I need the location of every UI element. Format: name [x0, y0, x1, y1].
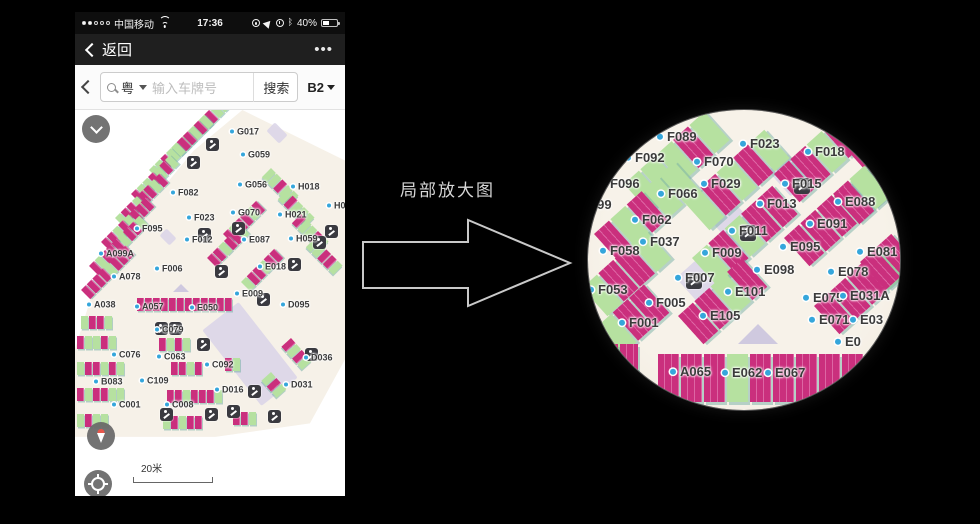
spot-id: F095 — [142, 224, 163, 234]
spot-dot-icon — [640, 238, 646, 244]
parking-stall — [187, 362, 194, 375]
parking-stall — [217, 298, 224, 311]
parking-spot-label: F023 — [740, 136, 780, 151]
spot-id: F001 — [629, 315, 659, 330]
spot-dot-icon — [112, 353, 116, 357]
spot-dot-icon — [165, 403, 169, 407]
parking-spot-label: C008 — [165, 400, 194, 410]
spot-id: F037 — [650, 234, 680, 249]
spot-dot-icon — [840, 292, 846, 298]
parking-spot-label: G059 — [241, 150, 270, 160]
spot-id: D031 — [291, 380, 313, 390]
spot-dot-icon — [725, 288, 731, 294]
parking-stall — [241, 412, 248, 425]
spot-id: E0 — [845, 334, 861, 349]
parking-row — [171, 362, 203, 375]
spot-id: F023 — [750, 136, 780, 151]
facility-icon — [232, 222, 245, 235]
alarm-icon — [276, 19, 284, 27]
spot-id: F012 — [192, 235, 213, 245]
parking-spot-label: E071 — [809, 312, 849, 327]
parking-stall — [101, 362, 108, 375]
plate-region-selector[interactable]: 粤 — [121, 78, 134, 97]
spot-id: C109 — [147, 376, 169, 386]
page: 中国移动 17:36 ᛒ 40% 返回 ••• 粤 输入车牌号 — [0, 0, 980, 524]
parking-stall — [195, 416, 202, 429]
parking-spot-label: A078 — [112, 272, 141, 282]
spot-id: E088 — [845, 194, 875, 209]
spot-dot-icon — [135, 227, 139, 231]
spot-id: F070 — [704, 154, 734, 169]
parking-stall — [171, 362, 178, 375]
spot-dot-icon — [646, 299, 652, 305]
spot-dot-icon — [757, 200, 763, 206]
map-scale: 20米 — [133, 460, 213, 483]
annotation-label: 局部放大图 — [400, 176, 530, 201]
spot-dot-icon — [235, 292, 239, 296]
spot-id: E087 — [249, 235, 270, 245]
parking-spot-label: F023 — [187, 213, 215, 223]
parking-spot-label: F007 — [675, 270, 715, 285]
spot-id: F015 — [792, 176, 822, 191]
search-icon — [107, 83, 116, 92]
spot-id: C008 — [172, 400, 194, 410]
parking-stall — [81, 316, 88, 329]
parking-spot-label: A057 — [135, 302, 164, 312]
parking-spot-label: F092 — [625, 150, 665, 165]
spot-dot-icon — [754, 266, 760, 272]
parking-spot-label: E075 — [803, 290, 843, 305]
spot-dot-icon — [140, 379, 144, 383]
facility-icon — [325, 225, 338, 238]
spot-id: D095 — [288, 300, 310, 310]
floor-selector[interactable]: B2 — [305, 76, 337, 99]
spot-dot-icon — [278, 213, 282, 217]
parking-stall — [195, 362, 202, 375]
phone-screenshot: 中国移动 17:36 ᛒ 40% 返回 ••• 粤 输入车牌号 — [75, 12, 345, 496]
parking-spot-label: F095 — [135, 224, 163, 234]
spot-dot-icon — [658, 190, 664, 196]
parking-spot-label: E081 — [857, 244, 897, 259]
parking-stall — [177, 298, 184, 311]
parking-spot-label: F029 — [701, 176, 741, 191]
spot-dot-icon — [185, 238, 189, 242]
locate-me-button[interactable] — [84, 470, 112, 496]
facility-icon — [227, 405, 240, 418]
spot-id: E031A — [850, 288, 890, 303]
parking-stall — [233, 358, 240, 371]
parking-stall — [819, 354, 840, 402]
spot-id: E078 — [838, 264, 868, 279]
spot-dot-icon — [155, 328, 159, 332]
parking-spot-label: F013 — [757, 196, 797, 211]
spot-id: E062 — [732, 365, 762, 380]
parking-spot-label: E031A — [840, 288, 890, 303]
parking-stall — [842, 354, 863, 402]
spot-id: E071 — [819, 312, 849, 327]
parking-stall — [117, 362, 124, 375]
spot-dot-icon — [291, 185, 295, 189]
parking-spot-label: E067 — [765, 365, 805, 380]
spot-id: F096 — [610, 176, 640, 191]
spot-dot-icon — [625, 154, 631, 160]
spot-id: E101 — [735, 284, 765, 299]
spot-dot-icon — [805, 148, 811, 154]
parking-stall — [183, 338, 190, 351]
parking-stall — [85, 336, 92, 349]
spot-id: H021 — [285, 210, 307, 220]
parking-spot-label: F082 — [171, 188, 199, 198]
parking-stall — [77, 388, 84, 401]
parking-spot-label: A099A — [99, 249, 134, 259]
location-services-icon — [262, 18, 273, 29]
parking-spot-label: D036 — [304, 353, 333, 363]
parking-stall — [101, 388, 108, 401]
spot-dot-icon — [729, 227, 735, 233]
parking-stall — [159, 338, 166, 351]
spot-dot-icon — [99, 252, 103, 256]
parking-spot-label: D031 — [284, 380, 313, 390]
spot-id: E009 — [242, 289, 263, 299]
spot-id: H059 — [296, 234, 318, 244]
parking-spot-label: C063 — [157, 352, 186, 362]
chevron-down-icon — [90, 121, 103, 134]
back-chevron-icon — [85, 42, 99, 56]
spot-id: F092 — [635, 150, 665, 165]
parking-row — [81, 316, 113, 329]
parking-spot-label: F058 — [600, 243, 640, 258]
spot-dot-icon — [205, 363, 209, 367]
parking-spot-label: E009 — [235, 289, 263, 299]
spot-dot-icon — [231, 211, 235, 215]
spot-id: F018 — [815, 144, 845, 159]
parking-stall — [207, 390, 214, 403]
battery-icon — [321, 19, 338, 27]
spot-id: F011 — [739, 223, 768, 238]
scale-label: 20米 — [141, 460, 213, 475]
search-bar: 粤 输入车牌号 搜索 B2 — [75, 65, 345, 110]
status-bar: 中国移动 17:36 ᛒ 40% — [75, 12, 345, 34]
parking-spot-label: F006 — [155, 264, 183, 274]
spot-dot-icon — [238, 183, 242, 187]
spot-id: F089 — [667, 129, 697, 144]
spot-dot-icon — [304, 356, 308, 360]
spot-id: F007 — [685, 270, 715, 285]
parking-spot-label: F018 — [805, 144, 845, 159]
parking-spot-label: E098 — [754, 262, 794, 277]
nav-bar: 返回 ••• — [75, 34, 345, 65]
status-icons: ᛒ 40% — [252, 18, 338, 29]
parking-spot-label: C076 — [112, 350, 141, 360]
spot-id: F058 — [610, 243, 640, 258]
parking-stall — [169, 298, 176, 311]
spot-dot-icon — [171, 191, 175, 195]
spot-dot-icon — [600, 180, 606, 186]
spot-dot-icon — [632, 216, 638, 222]
collapse-search-button[interactable] — [81, 80, 95, 94]
back-button[interactable]: 返回 — [102, 39, 132, 60]
spot-id: F023 — [194, 213, 215, 223]
parking-stall — [179, 362, 186, 375]
spot-id: C063 — [164, 352, 186, 362]
spot-id: E091 — [817, 216, 847, 231]
floor-label: B2 — [307, 80, 324, 95]
parking-spot-label: C001 — [112, 400, 141, 410]
parking-spot-label: E018 — [258, 262, 286, 272]
spot-dot-icon — [835, 338, 841, 344]
parking-spot-label: H021 — [278, 210, 307, 220]
parking-spot-label: F066 — [658, 186, 698, 201]
parking-spot-label: E088 — [835, 194, 875, 209]
search-box[interactable]: 粤 输入车牌号 搜索 — [100, 72, 298, 102]
spot-id: A099A — [106, 249, 134, 259]
spot-dot-icon — [619, 319, 625, 325]
spot-id: F005 — [656, 295, 686, 310]
road-arrow — [738, 324, 778, 344]
collapse-map-button[interactable] — [82, 115, 110, 143]
parking-stall — [620, 344, 638, 370]
spot-dot-icon — [284, 383, 288, 387]
parking-row — [159, 338, 191, 351]
spot-dot-icon — [722, 369, 728, 375]
parking-stall — [600, 344, 618, 370]
parking-spot-label: E0 — [835, 334, 861, 349]
parking-stall — [109, 362, 116, 375]
spot-dot-icon — [835, 198, 841, 204]
parking-stall — [225, 298, 232, 311]
parking-row — [77, 336, 117, 349]
spot-id: E050 — [197, 303, 218, 313]
magnified-map-view: F089F092F096F099F023F018F070F029F066F015… — [588, 110, 900, 410]
facility-icon — [206, 138, 219, 151]
spot-dot-icon — [588, 286, 594, 292]
spot-id: H018 — [298, 182, 320, 192]
spot-id: C092 — [212, 360, 234, 370]
parking-spot-label: F062 — [632, 212, 672, 227]
parking-stall — [93, 362, 100, 375]
spot-id: E067 — [775, 365, 805, 380]
spot-dot-icon — [850, 316, 856, 322]
battery-percent-label: 40% — [297, 18, 317, 29]
spot-id: E081 — [867, 244, 897, 259]
spot-dot-icon — [782, 180, 788, 186]
spot-id: D036 — [311, 353, 333, 363]
spot-dot-icon — [807, 220, 813, 226]
parking-spot-label: G070 — [231, 208, 260, 218]
bluetooth-icon: ᛒ — [288, 19, 293, 28]
parking-spot-label: F037 — [640, 234, 680, 249]
spot-id: E095 — [790, 239, 820, 254]
parking-spot-label: G017 — [230, 127, 259, 137]
spot-dot-icon — [157, 355, 161, 359]
signal-strength-icon — [82, 21, 110, 25]
chevron-down-icon — [139, 85, 147, 90]
spot-dot-icon — [702, 249, 708, 255]
spot-dot-icon — [281, 303, 285, 307]
spot-id: F053 — [598, 282, 628, 297]
spot-dot-icon — [809, 316, 815, 322]
parking-stall — [85, 362, 92, 375]
parking-stall — [187, 416, 194, 429]
spot-id: G017 — [237, 127, 259, 137]
parking-spot-label: E105 — [700, 308, 740, 323]
spot-id: G056 — [245, 180, 267, 190]
parking-stall — [865, 354, 886, 402]
spot-dot-icon — [289, 237, 293, 241]
parking-spot-label: F001 — [619, 315, 659, 330]
parking-spot-label: E03 — [850, 312, 883, 327]
parking-stall — [97, 316, 104, 329]
parking-spot-label: E062 — [722, 365, 762, 380]
facility-icon — [248, 385, 261, 398]
parking-stall — [179, 416, 186, 429]
carrier-label: 中国移动 — [114, 16, 154, 31]
parking-spot-label: F070 — [694, 154, 734, 169]
scale-bar — [133, 477, 213, 483]
facility-icon — [160, 408, 173, 421]
spot-dot-icon — [857, 248, 863, 254]
spot-id: F066 — [668, 186, 698, 201]
spot-dot-icon — [112, 403, 116, 407]
plate-number-input[interactable]: 输入车牌号 — [152, 78, 248, 97]
spot-id: C076 — [119, 350, 141, 360]
parking-spot-label: F053 — [588, 282, 628, 297]
spot-dot-icon — [670, 368, 676, 374]
zoom-arrow — [352, 212, 574, 316]
spot-dot-icon — [740, 140, 746, 146]
spot-id: A038 — [94, 300, 116, 310]
spot-id: F013 — [767, 196, 797, 211]
parking-spot-label: F096 — [600, 176, 640, 191]
parking-spot-label: F012 — [185, 235, 213, 245]
spot-id: A065 — [680, 364, 711, 379]
spot-id: C079 — [162, 325, 184, 335]
parking-spot-label: E095 — [780, 239, 820, 254]
spot-id: G070 — [238, 208, 260, 218]
spot-id: E03 — [860, 312, 883, 327]
spot-id: F009 — [712, 245, 742, 260]
spot-id: F082 — [178, 188, 199, 198]
parking-stall — [77, 414, 84, 427]
parking-spot-label: E087 — [242, 235, 270, 245]
spot-id: F062 — [642, 212, 672, 227]
parking-spot-label: E050 — [190, 303, 218, 313]
parking-spot-label: H0 — [327, 201, 345, 211]
spot-id: F006 — [162, 264, 183, 274]
spot-dot-icon — [87, 303, 91, 307]
facility-icon — [215, 265, 228, 278]
parking-spot-label: F011 — [729, 223, 768, 238]
spot-id: B083 — [101, 377, 123, 387]
spot-dot-icon — [241, 153, 245, 157]
spot-id: H0 — [334, 201, 345, 211]
spot-dot-icon — [780, 243, 786, 249]
parking-spot-label: F089 — [657, 129, 697, 144]
spot-dot-icon — [242, 238, 246, 242]
spot-dot-icon — [694, 158, 700, 164]
spot-dot-icon — [765, 369, 771, 375]
spot-dot-icon — [190, 306, 194, 310]
parking-spot-label: B083 — [94, 377, 123, 387]
spot-id: F029 — [711, 176, 741, 191]
parking-spot-label: G056 — [238, 180, 267, 190]
spot-dot-icon — [187, 216, 191, 220]
parking-stall — [85, 388, 92, 401]
parking-spot-label: A038 — [87, 300, 116, 310]
spot-id: A057 — [142, 302, 164, 312]
spot-dot-icon — [215, 388, 219, 392]
parking-spot-label: C092 — [205, 360, 234, 370]
road-arrow — [173, 284, 189, 292]
parking-spot-label: D016 — [215, 385, 244, 395]
parking-stall — [167, 338, 174, 351]
spot-dot-icon — [675, 274, 681, 280]
spot-dot-icon — [230, 130, 234, 134]
parking-spot-label: F099 — [588, 197, 612, 212]
spot-id: E075 — [813, 290, 843, 305]
parking-spot-label: H059 — [289, 234, 318, 244]
spot-id: E018 — [265, 262, 286, 272]
more-menu-button[interactable]: ••• — [314, 41, 333, 58]
do-not-disturb-icon — [252, 19, 260, 27]
parking-spot-label: F009 — [702, 245, 742, 260]
spot-id: C001 — [119, 400, 141, 410]
clock-label: 17:36 — [197, 18, 223, 29]
wifi-icon — [158, 19, 171, 28]
spot-dot-icon — [803, 294, 809, 300]
parking-stall — [249, 412, 256, 425]
facility-icon — [288, 258, 301, 271]
parking-stall — [93, 388, 100, 401]
parking-spot-label: H018 — [291, 182, 320, 192]
spot-dot-icon — [657, 133, 663, 139]
facility-icon — [197, 338, 210, 351]
parking-spot-label: E101 — [725, 284, 765, 299]
search-button[interactable]: 搜索 — [253, 73, 291, 102]
parking-stall — [105, 316, 112, 329]
parking-spot-label: F015 — [782, 176, 822, 191]
spot-id: F099 — [588, 197, 612, 212]
spot-dot-icon — [94, 380, 98, 384]
parking-stall — [199, 390, 206, 403]
parking-spot-label: D095 — [281, 300, 310, 310]
parking-stall — [101, 336, 108, 349]
parking-spot-label: C109 — [140, 376, 169, 386]
parking-stall — [77, 336, 84, 349]
parking-stall — [89, 316, 96, 329]
parking-stall — [109, 336, 116, 349]
spot-dot-icon — [135, 305, 139, 309]
spot-dot-icon — [258, 265, 262, 269]
spot-id: E105 — [710, 308, 740, 323]
mark-location-button[interactable] — [87, 422, 115, 450]
crosshair-icon — [91, 477, 105, 491]
parking-row — [77, 362, 125, 375]
spot-dot-icon — [155, 267, 159, 271]
parking-row — [600, 344, 640, 370]
spot-dot-icon — [701, 180, 707, 186]
chevron-down-icon — [327, 85, 335, 90]
parking-spot-label: C079 — [155, 325, 184, 335]
facility-icon — [187, 156, 200, 169]
parking-stall — [175, 338, 182, 351]
parking-stall — [93, 336, 100, 349]
facility-icon — [205, 408, 218, 421]
pin-icon — [96, 429, 106, 443]
parking-map[interactable]: G017G059G056H018F082G070H021H0F023F095F0… — [75, 110, 345, 447]
spot-dot-icon — [700, 312, 706, 318]
spot-id: E098 — [764, 262, 794, 277]
